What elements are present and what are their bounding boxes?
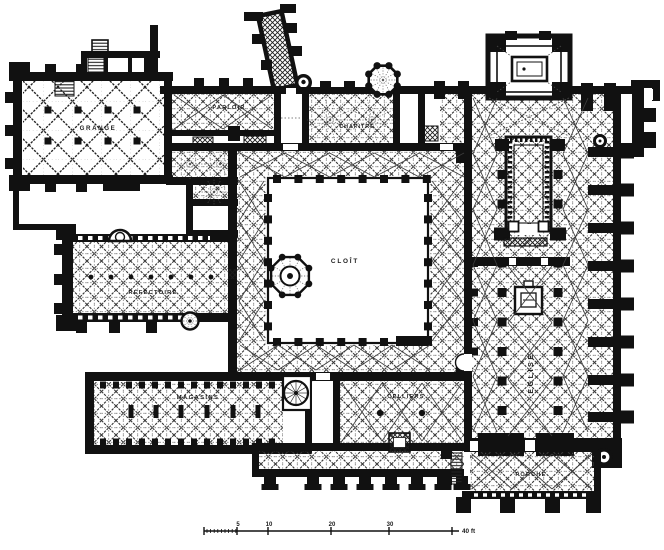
svg-text:40 ft: 40 ft — [462, 528, 476, 535]
svg-text:30: 30 — [387, 522, 394, 528]
svg-text:10: 10 — [266, 522, 273, 528]
svg-text:GRANGE: GRANGE — [80, 125, 117, 132]
svg-text:CHAPITRE: CHAPITRE — [339, 124, 375, 130]
svg-text:RÉFECTOIRE: RÉFECTOIRE — [128, 288, 177, 296]
svg-text:CLOÎT: CLOÎT — [331, 256, 359, 265]
svg-text:MAGASINS: MAGASINS — [177, 395, 219, 401]
svg-text:20: 20 — [329, 522, 336, 528]
svg-text:ÉGLISE: ÉGLISE — [526, 352, 535, 393]
svg-text:PARLOIR: PARLOIR — [212, 105, 245, 111]
